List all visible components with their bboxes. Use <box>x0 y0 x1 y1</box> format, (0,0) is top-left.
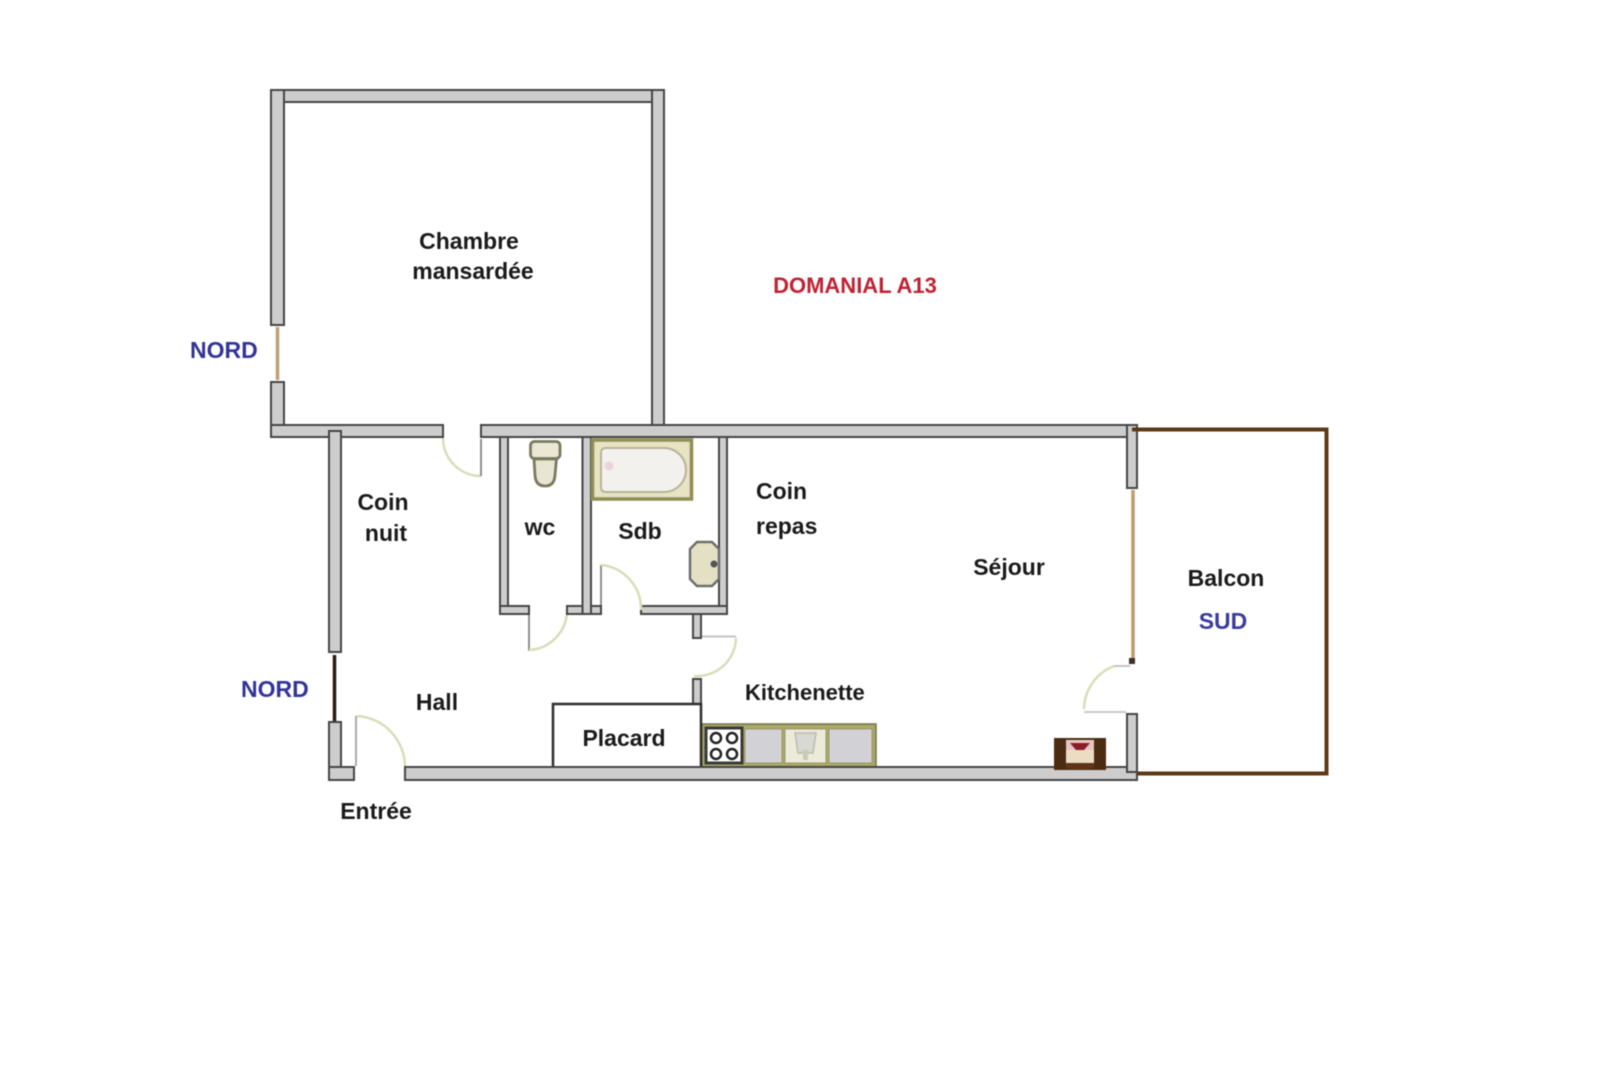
svg-text:Kitchenette: Kitchenette <box>745 680 865 705</box>
svg-text:Coin: Coin <box>357 489 408 515</box>
svg-text:Placard: Placard <box>582 725 665 751</box>
svg-text:nuit: nuit <box>365 520 407 546</box>
svg-text:Hall: Hall <box>416 689 458 715</box>
svg-text:Balcon: Balcon <box>1188 565 1265 591</box>
svg-text:Entrée: Entrée <box>340 798 412 824</box>
svg-text:repas: repas <box>756 513 817 539</box>
svg-text:NORD: NORD <box>241 676 309 702</box>
svg-text:Sdb: Sdb <box>618 518 661 544</box>
svg-text:wc: wc <box>524 514 556 540</box>
svg-text:mansardée: mansardée <box>412 258 533 284</box>
svg-text:Coin: Coin <box>756 478 807 504</box>
svg-text:DOMANIAL A13: DOMANIAL A13 <box>773 273 937 298</box>
svg-text:Chambre: Chambre <box>419 228 519 254</box>
svg-text:SUD: SUD <box>1199 608 1248 634</box>
svg-text:NORD: NORD <box>190 337 258 363</box>
svg-text:Séjour: Séjour <box>973 554 1045 580</box>
